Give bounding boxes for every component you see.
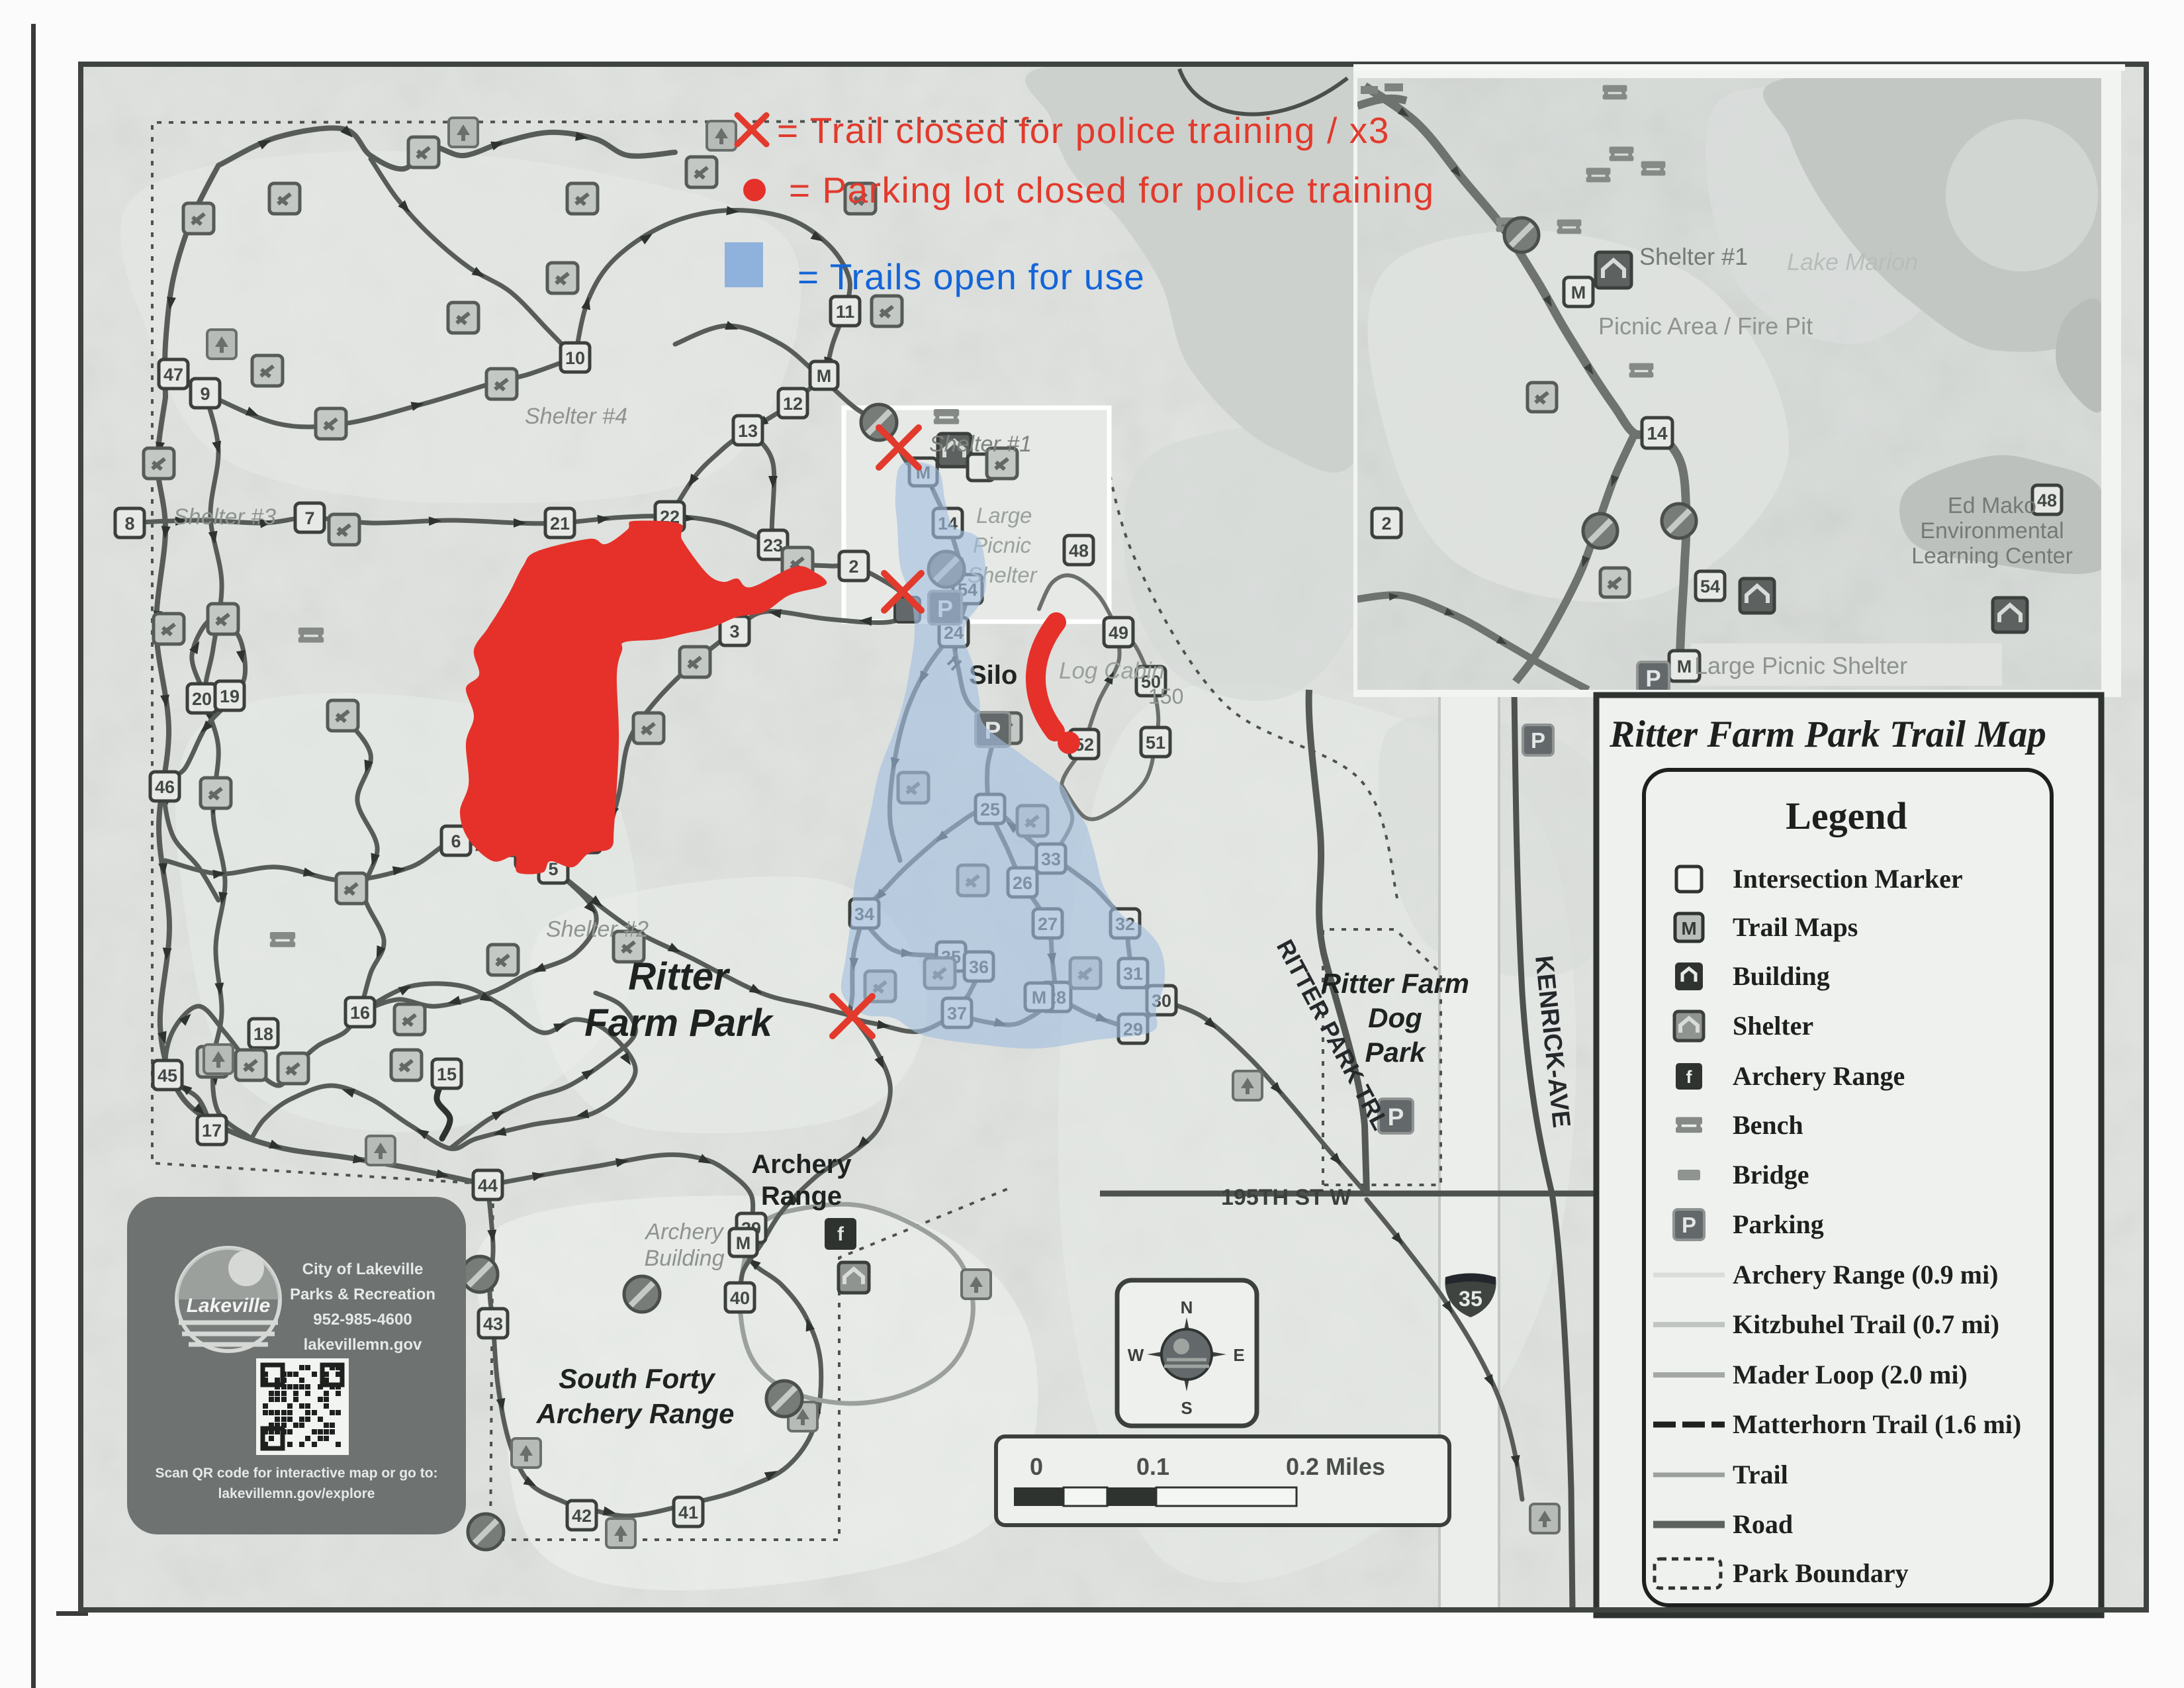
svg-text:51: 51 — [1146, 733, 1165, 753]
svg-text:lakevillemn.gov/explore: lakevillemn.gov/explore — [218, 1486, 375, 1501]
svg-text:S: S — [1181, 1398, 1192, 1418]
svg-text:Intersection Marker: Intersection Marker — [1733, 864, 1963, 894]
svg-text:54: 54 — [1700, 577, 1720, 596]
svg-text:Ritter Farm: Ritter Farm — [1321, 968, 1469, 999]
svg-text:Road: Road — [1733, 1509, 1793, 1539]
svg-text:48: 48 — [1069, 541, 1089, 561]
svg-text:Dog: Dog — [1368, 1002, 1422, 1033]
svg-text:Lake Marion: Lake Marion — [1787, 248, 1918, 275]
svg-text:Trail: Trail — [1733, 1460, 1788, 1489]
svg-text:45: 45 — [158, 1066, 177, 1086]
svg-text:Large Picnic Shelter: Large Picnic Shelter — [1694, 652, 1907, 679]
svg-text:Bridge: Bridge — [1733, 1160, 1809, 1190]
svg-text:M: M — [817, 366, 832, 386]
svg-text:49: 49 — [1109, 623, 1128, 643]
svg-text:0: 0 — [1030, 1453, 1043, 1480]
svg-text:City of Lakeville: City of Lakeville — [302, 1260, 424, 1278]
svg-text:952-985-4600: 952-985-4600 — [313, 1311, 412, 1329]
svg-text:Archery Range: Archery Range — [1733, 1061, 1905, 1091]
svg-text:= Parking lot closed for polic: = Parking lot closed for police training — [789, 169, 1435, 211]
svg-text:17: 17 — [202, 1121, 222, 1141]
svg-text:Shelter #4: Shelter #4 — [525, 404, 627, 429]
svg-text:Building: Building — [1733, 961, 1830, 991]
svg-text:Building: Building — [645, 1246, 725, 1271]
svg-text:14: 14 — [1647, 423, 1668, 444]
svg-text:8: 8 — [124, 514, 134, 534]
svg-text:lakevillemn.gov: lakevillemn.gov — [304, 1336, 422, 1354]
svg-text:10: 10 — [565, 348, 585, 368]
svg-text:Ed Mako: Ed Mako — [1948, 493, 2036, 518]
svg-text:Archery Range: Archery Range — [536, 1398, 735, 1429]
svg-text:12: 12 — [783, 394, 803, 414]
svg-text:41: 41 — [678, 1503, 698, 1523]
svg-text:Range: Range — [761, 1182, 842, 1211]
svg-text:Kitzbuhel Trail (0.7 mi): Kitzbuhel Trail (0.7 mi) — [1733, 1309, 1999, 1339]
svg-text:Legend: Legend — [1786, 794, 1907, 837]
svg-text:P: P — [1645, 666, 1661, 692]
svg-text:Bench: Bench — [1733, 1110, 1803, 1140]
svg-text:2: 2 — [1381, 514, 1391, 534]
svg-text:Scan QR code for interactive m: Scan QR code for interactive map or go t… — [155, 1466, 437, 1481]
svg-text:Farm Park: Farm Park — [584, 1002, 774, 1045]
svg-text:South Forty: South Forty — [559, 1363, 716, 1394]
svg-text:0.1: 0.1 — [1136, 1453, 1169, 1480]
svg-text:6: 6 — [451, 831, 461, 851]
svg-text:Archery Range (0.9 mi): Archery Range (0.9 mi) — [1733, 1260, 1998, 1289]
svg-text:46: 46 — [155, 777, 175, 797]
svg-text:Shelter #1: Shelter #1 — [929, 432, 1032, 457]
svg-text:E: E — [1233, 1345, 1244, 1365]
svg-text:42: 42 — [572, 1506, 592, 1526]
svg-text:7: 7 — [304, 508, 314, 528]
svg-text:Mader Loop (2.0 mi): Mader Loop (2.0 mi) — [1733, 1360, 1968, 1389]
svg-text:P: P — [1682, 1213, 1696, 1237]
svg-text:Archery: Archery — [644, 1219, 724, 1244]
svg-text:P: P — [1531, 728, 1545, 753]
svg-text:195TH ST W: 195TH ST W — [1221, 1185, 1351, 1210]
svg-text:13: 13 — [738, 421, 758, 441]
svg-text:Shelter #3: Shelter #3 — [173, 504, 276, 530]
svg-text:21: 21 — [550, 514, 570, 534]
svg-text:M: M — [1681, 918, 1696, 939]
svg-text:150: 150 — [1148, 684, 1183, 708]
svg-text:0.2 Miles: 0.2 Miles — [1286, 1453, 1385, 1480]
svg-text:Picnic Area / Fire Pit: Picnic Area / Fire Pit — [1598, 312, 1813, 340]
svg-text:Log Cabin: Log Cabin — [1059, 658, 1165, 684]
svg-text:M: M — [1571, 283, 1586, 303]
svg-text:Archery: Archery — [751, 1150, 852, 1179]
svg-text:Park Boundary: Park Boundary — [1733, 1558, 1909, 1588]
svg-text:15: 15 — [437, 1064, 457, 1084]
svg-text:43: 43 — [483, 1314, 503, 1334]
svg-text:9: 9 — [200, 384, 210, 404]
svg-text:18: 18 — [253, 1024, 273, 1044]
svg-text:47: 47 — [163, 365, 183, 385]
svg-text:M: M — [736, 1233, 751, 1253]
svg-text:44: 44 — [478, 1176, 498, 1196]
svg-text:= Trail closed for police trai: = Trail closed for police training / x3 — [777, 110, 1390, 151]
svg-text:Lakeville: Lakeville — [187, 1295, 271, 1317]
svg-text:40: 40 — [730, 1288, 750, 1308]
svg-text:W: W — [1128, 1345, 1144, 1365]
svg-text:Shelter: Shelter — [1733, 1011, 1813, 1041]
svg-text:35: 35 — [1459, 1287, 1482, 1311]
svg-text:N: N — [1181, 1297, 1193, 1317]
svg-text:f: f — [837, 1223, 844, 1245]
svg-text:2: 2 — [848, 557, 858, 577]
svg-text:11: 11 — [836, 302, 855, 322]
svg-text:M: M — [1677, 657, 1692, 677]
svg-text:Trail Maps: Trail Maps — [1733, 912, 1858, 942]
svg-text:23: 23 — [763, 536, 783, 555]
svg-text:Matterhorn Trail (1.6 mi): Matterhorn Trail (1.6 mi) — [1733, 1409, 2021, 1439]
svg-text:Parking: Parking — [1733, 1209, 1824, 1239]
svg-text:48: 48 — [2037, 491, 2057, 510]
svg-text:f: f — [1686, 1067, 1693, 1087]
svg-text:Environmental: Environmental — [1920, 518, 2064, 543]
svg-text:Shelter #1: Shelter #1 — [1639, 243, 1748, 270]
svg-text:Shelter #2: Shelter #2 — [546, 917, 649, 942]
svg-text:20: 20 — [192, 689, 212, 709]
svg-text:Ritter Farm Park Trail Map: Ritter Farm Park Trail Map — [1609, 714, 2046, 755]
svg-text:Park: Park — [1365, 1037, 1427, 1068]
svg-text:16: 16 — [350, 1003, 370, 1023]
svg-text:Parks & Recreation: Parks & Recreation — [290, 1286, 435, 1303]
svg-text:Ritter: Ritter — [628, 955, 731, 998]
svg-text:Learning Center: Learning Center — [1911, 543, 2073, 569]
svg-text:3: 3 — [729, 622, 739, 641]
svg-text:19: 19 — [220, 686, 240, 706]
svg-text:= Trails open for use: = Trails open for use — [797, 256, 1145, 297]
svg-text:Large: Large — [976, 503, 1032, 528]
